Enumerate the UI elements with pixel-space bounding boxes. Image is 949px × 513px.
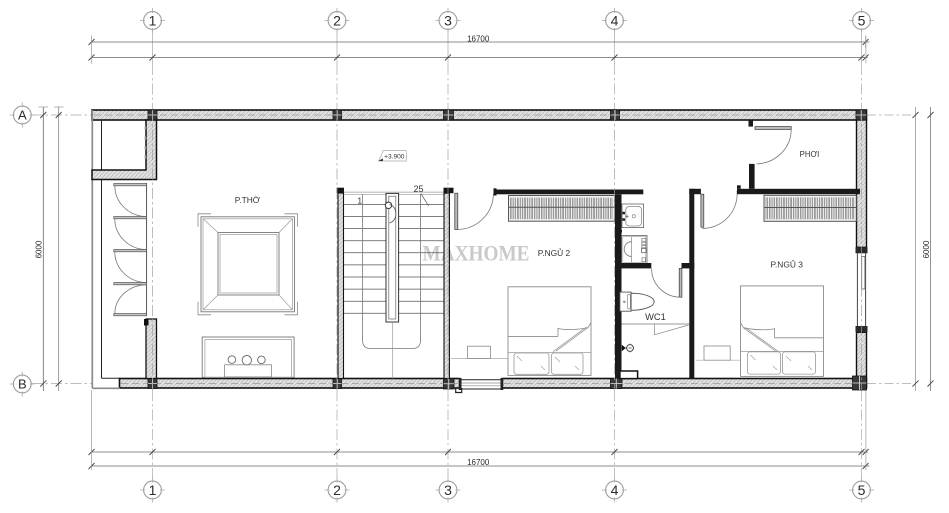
svg-text:2: 2 xyxy=(333,482,341,498)
svg-text:B: B xyxy=(18,377,27,392)
svg-text:2: 2 xyxy=(333,13,341,29)
svg-text:1: 1 xyxy=(149,13,157,29)
svg-text:PHƠI: PHƠI xyxy=(800,150,820,159)
svg-text:3: 3 xyxy=(444,482,452,498)
svg-text:+3.900: +3.900 xyxy=(384,154,405,161)
svg-text:P.NGỦ 2: P.NGỦ 2 xyxy=(538,247,571,258)
svg-text:5: 5 xyxy=(858,482,866,498)
svg-text:5: 5 xyxy=(858,13,866,29)
svg-text:P.NGỦ 3: P.NGỦ 3 xyxy=(770,258,803,269)
svg-text:16700: 16700 xyxy=(467,34,490,43)
svg-text:16700: 16700 xyxy=(467,458,490,467)
svg-text:3: 3 xyxy=(444,13,452,29)
svg-text:1: 1 xyxy=(149,482,157,498)
svg-text:25: 25 xyxy=(413,184,423,194)
svg-text:A: A xyxy=(18,108,27,123)
svg-text:6000: 6000 xyxy=(34,240,43,258)
svg-text:4: 4 xyxy=(611,482,619,498)
svg-text:P.THỜ: P.THỜ xyxy=(235,195,260,205)
svg-text:6000: 6000 xyxy=(922,240,931,258)
svg-text:4: 4 xyxy=(611,13,619,29)
svg-text:1: 1 xyxy=(357,196,362,206)
svg-text:WC1: WC1 xyxy=(645,312,666,322)
